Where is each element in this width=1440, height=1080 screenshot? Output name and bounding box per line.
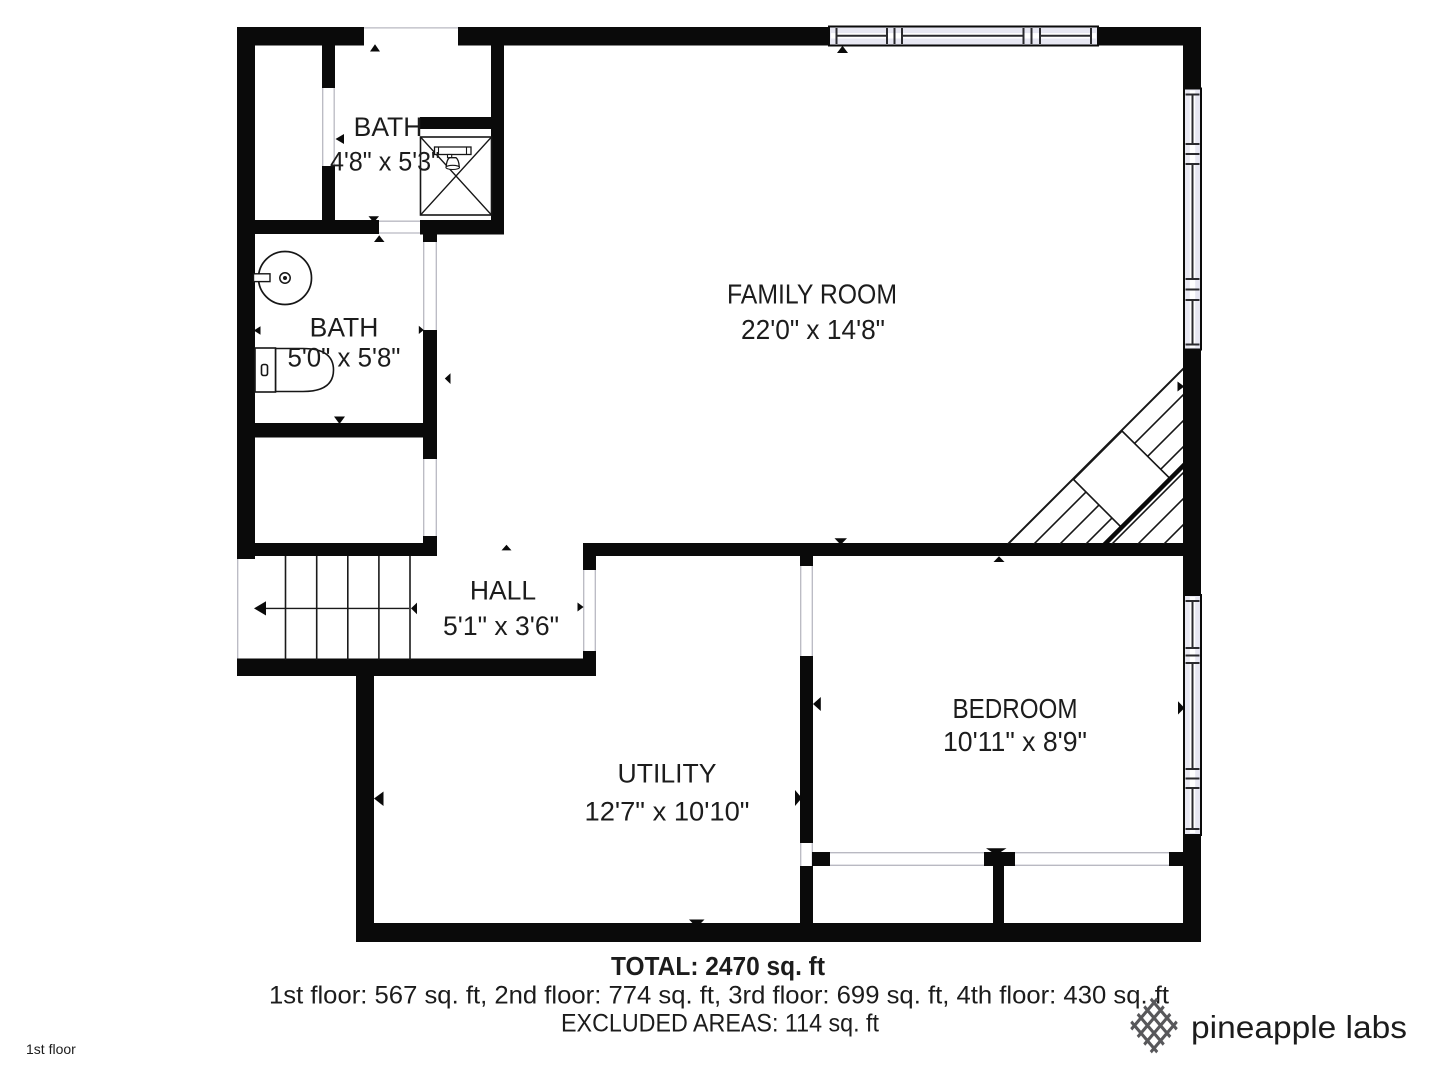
svg-text:TOTAL: 2470 sq. ft: TOTAL: 2470 sq. ft (611, 953, 825, 981)
svg-text:5'0" x 5'8": 5'0" x 5'8" (288, 343, 401, 373)
svg-text:BATH: BATH (354, 112, 423, 142)
svg-text:UTILITY: UTILITY (618, 759, 717, 789)
svg-text:BATH: BATH (310, 313, 379, 343)
svg-text:pineapple labs: pineapple labs (1191, 1009, 1407, 1045)
svg-text:BEDROOM: BEDROOM (953, 693, 1078, 724)
svg-text:1st floor: 1st floor (26, 1041, 76, 1057)
svg-text:12'7" x 10'10": 12'7" x 10'10" (585, 797, 750, 827)
svg-text:10'11" x 8'9": 10'11" x 8'9" (943, 726, 1087, 757)
svg-text:4'8" x 5'3": 4'8" x 5'3" (330, 147, 440, 177)
svg-text:EXCLUDED AREAS: 114 sq. ft: EXCLUDED AREAS: 114 sq. ft (561, 1010, 879, 1038)
svg-text:HALL: HALL (470, 576, 536, 606)
svg-text:5'1" x 3'6": 5'1" x 3'6" (443, 611, 559, 641)
svg-text:22'0" x 14'8": 22'0" x 14'8" (741, 314, 885, 345)
svg-text:FAMILY ROOM: FAMILY ROOM (727, 279, 897, 310)
svg-text:1st floor: 567 sq. ft, 2nd flo: 1st floor: 567 sq. ft, 2nd floor: 774 sq… (269, 982, 1169, 1010)
